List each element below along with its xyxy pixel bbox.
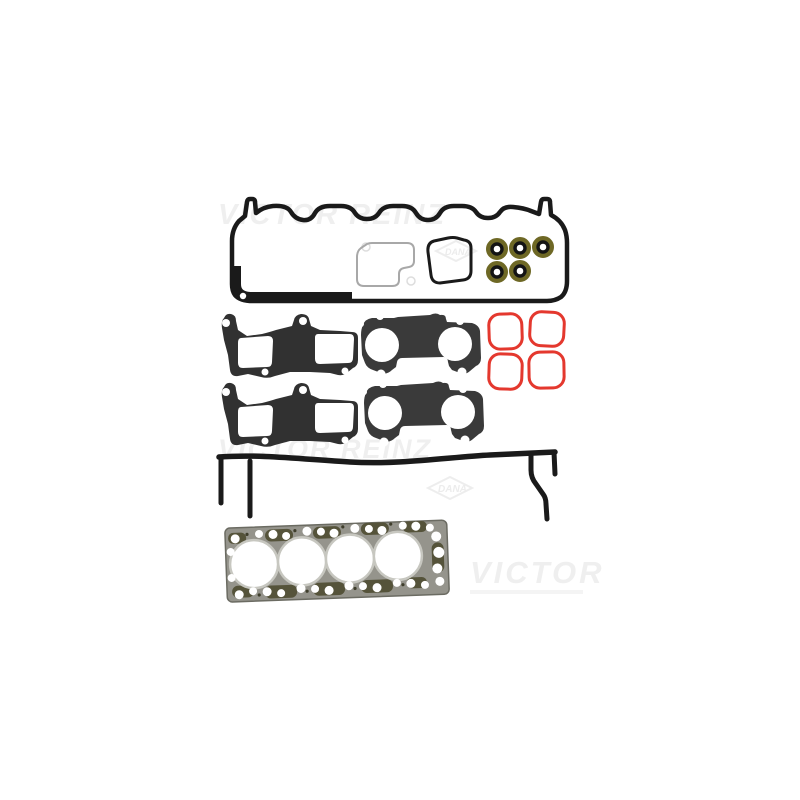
inner-gasket-thin-outline <box>357 243 414 286</box>
round-port-seal-red <box>488 313 522 349</box>
intake-gasket-plate <box>222 314 358 378</box>
notch <box>380 438 389 447</box>
notch <box>458 368 467 377</box>
notch <box>379 380 387 388</box>
bolt-hole <box>222 388 230 396</box>
bolt-hole <box>299 386 307 394</box>
bolt-hole <box>342 368 349 375</box>
product-photo-canvas: VICTOR REINZ VICTOR REINZ VICTOR DANA DA… <box>0 0 800 800</box>
cylinder-bore <box>277 537 327 587</box>
notch <box>377 370 386 379</box>
bolt-hole <box>262 369 269 376</box>
exhaust-port-opening <box>365 328 399 362</box>
watermark-victor-bottom: VICTOR <box>470 555 605 594</box>
dana-logo-watermark-lower: DANA <box>428 477 472 499</box>
valve-stem-seal <box>534 238 551 255</box>
cylinder-bore <box>373 531 423 581</box>
exhaust-manifold-gaskets <box>358 312 484 447</box>
watermark-underline <box>470 590 583 594</box>
intake-manifold-gasket-2 <box>222 383 358 447</box>
bolt-hole <box>299 317 307 325</box>
exhaust-manifold-gasket-1 <box>358 312 481 379</box>
red-port-seals <box>488 311 564 389</box>
cylinder-bore <box>229 539 279 589</box>
notch <box>376 312 384 320</box>
round-port-seal-red <box>529 311 565 347</box>
notch <box>459 385 467 393</box>
notch <box>456 317 464 325</box>
valve-stem-seal <box>511 239 528 256</box>
watermark-victor-text: VICTOR <box>470 555 605 590</box>
valve-stem-seal <box>488 263 505 280</box>
valve-stem-seals <box>488 238 551 280</box>
round-port-seal-red <box>488 353 522 389</box>
dana-logo-text: DANA <box>438 484 467 495</box>
cylinder-bore <box>325 534 375 584</box>
notch <box>461 436 470 445</box>
dana-logo-text: DANA <box>445 247 471 257</box>
bolt-hole <box>342 437 349 444</box>
valve-stem-seal <box>511 262 528 279</box>
bolt-hole <box>222 319 230 327</box>
valve-cover-bolt-hole <box>240 293 246 299</box>
bolt-hole <box>262 438 269 445</box>
side-gasket-leg-right-angled <box>531 455 547 519</box>
intake-gasket-plate <box>222 383 358 447</box>
corner-notch <box>361 389 367 395</box>
exhaust-port-opening <box>368 396 402 430</box>
cylinder-head-gasket <box>225 520 450 602</box>
corner-notch <box>358 321 364 327</box>
round-port-seal-red <box>529 352 565 389</box>
inner-cover-gasket-thin <box>357 243 415 286</box>
side-gasket-leg-right-end <box>554 452 555 474</box>
exhaust-port-opening <box>441 395 475 429</box>
valve-cover-gasket-thick-rail <box>236 266 352 297</box>
gasket-set-photo: VICTOR REINZ VICTOR REINZ VICTOR DANA DA… <box>0 0 800 800</box>
washer-shadow <box>407 277 415 285</box>
valve-stem-seal <box>488 240 505 257</box>
intake-manifold-gasket-1 <box>222 314 358 378</box>
corner-notch <box>358 363 364 369</box>
intake-manifold-gaskets <box>222 314 358 447</box>
exhaust-port-opening <box>438 327 472 361</box>
corner-notch <box>361 431 367 437</box>
